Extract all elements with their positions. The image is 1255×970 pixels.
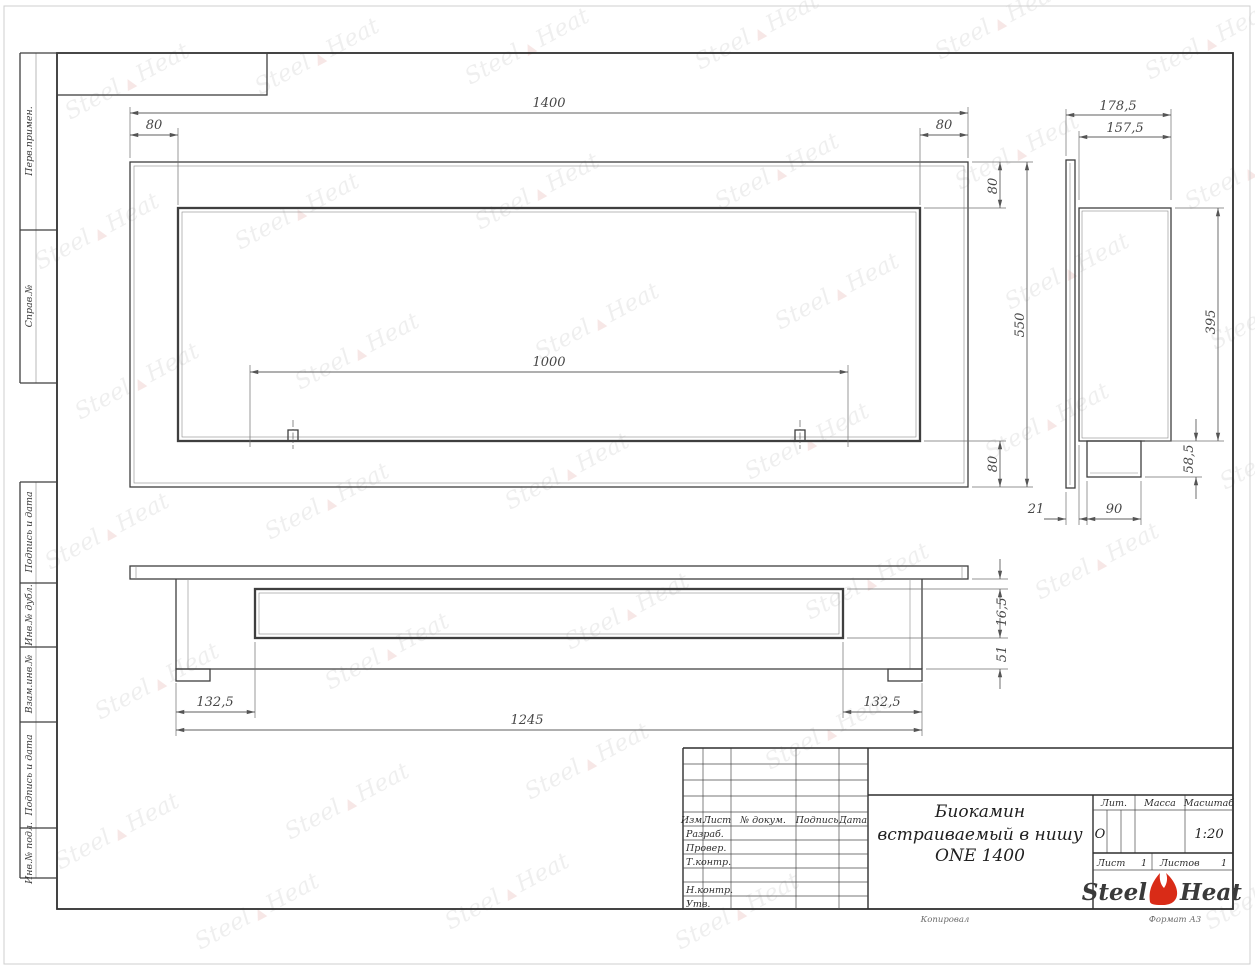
margin-label: Подпись и дата: [24, 734, 35, 817]
dim-side-depth-total: 178,5: [1099, 99, 1136, 114]
rev-col-doc: № докум.: [739, 815, 786, 826]
dim-front-inset-left: 80: [146, 118, 163, 133]
doc-title-line1: Биокамин: [934, 802, 1025, 822]
mass-label: Масса: [1143, 798, 1176, 809]
role-nkontr: Н.контр.: [685, 885, 733, 896]
dim-front-inset-top: 80: [986, 178, 1001, 195]
dim-bottom-margin-right: 132,5: [863, 695, 900, 710]
drawing-sheet: Steel▲Heat Перв.примен. Справ.№ Подпи: [0, 0, 1255, 970]
dim-front-height: 550: [1013, 313, 1028, 338]
logo-steel-text: Steel: [1082, 879, 1148, 906]
dim-side-front-gap: 21: [1027, 502, 1045, 517]
role-prover: Провер.: [685, 843, 726, 854]
sheets-total-value: 1: [1221, 858, 1227, 869]
margin-label: Справ.№: [24, 285, 35, 328]
steelheat-logo: Steel Heat: [1082, 873, 1243, 906]
margin-label: Подпись и дата: [24, 491, 35, 574]
sheet-frame: [4, 6, 1250, 964]
kopiroval-label: Копировал: [920, 915, 970, 925]
margin-label: Взам.инв.№: [24, 655, 35, 715]
dim-bottom-margin-left: 132,5: [196, 695, 233, 710]
dim-front-burner: 1000: [532, 355, 565, 370]
foot-bracket: [888, 669, 922, 681]
sheets-total-label: Листов: [1159, 858, 1200, 869]
rev-col-list: Лист: [702, 815, 731, 826]
rev-col-sign: Подпись: [795, 815, 839, 826]
sheet-value: 1: [1141, 858, 1147, 869]
rev-col-date: Дата: [838, 815, 867, 826]
side-view: 178,5 157,5 395 58,5 21 90: [1027, 99, 1224, 525]
format-label: Формат А3: [1149, 915, 1201, 925]
margin-label: Инв.№ подл.: [24, 822, 35, 885]
margin-label: Инв.№ дубл.: [24, 584, 35, 647]
dim-side-tray-height: 58,5: [1182, 445, 1197, 474]
dim-side-height: 395: [1204, 310, 1219, 335]
margin-labels: Перв.примен. Справ.№ Подпись и дата Инв.…: [24, 106, 35, 885]
scale-label: Масштаб: [1183, 798, 1234, 809]
dim-side-tray-depth: 90: [1106, 502, 1123, 517]
flame-icon: [1150, 873, 1178, 905]
lit-value: О: [1095, 827, 1106, 842]
scale-value: 1:20: [1194, 827, 1223, 842]
watermark-layer: [31, 0, 1255, 955]
role-tkontr: Т.контр.: [686, 857, 731, 868]
dim-front-width: 1400: [532, 96, 565, 111]
lit-label: Лит.: [1100, 798, 1127, 809]
role-utv: Утв.: [686, 899, 710, 910]
doc-title-line3: ONE 1400: [935, 846, 1025, 866]
dim-front-inset-bottom: 80: [986, 456, 1001, 473]
role-razrab: Разраб.: [685, 829, 724, 840]
margin-label: Перв.примен.: [24, 106, 35, 177]
dim-bottom-length: 1245: [510, 713, 543, 728]
dim-bottom-lip: 16,5: [995, 598, 1010, 627]
dim-bottom-tray: 51: [995, 646, 1010, 663]
dim-side-depth-box: 157,5: [1106, 121, 1143, 136]
logo-heat-text: Heat: [1179, 879, 1242, 906]
doc-title-line2: встраиваемый в нишу: [877, 825, 1082, 845]
dim-front-inset-right: 80: [936, 118, 953, 133]
rev-col-izm: Изм.: [680, 815, 705, 826]
sheet-label: Лист: [1096, 858, 1125, 869]
